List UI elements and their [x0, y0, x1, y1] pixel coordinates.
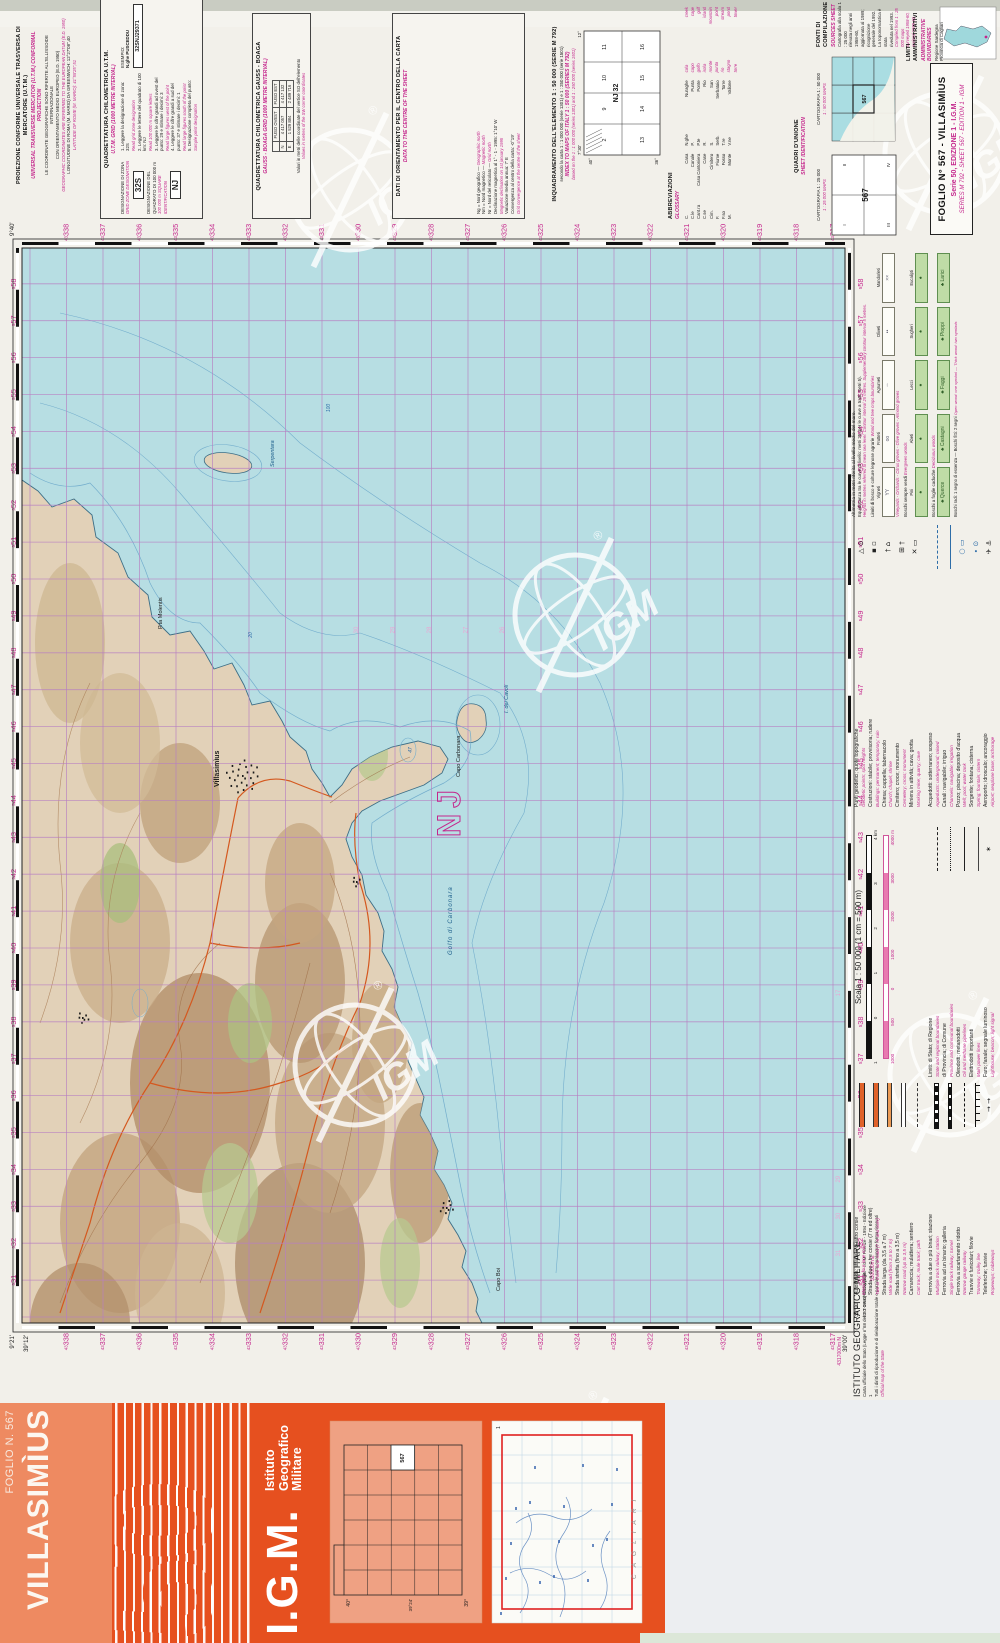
full-northing-label: 4317000m N	[837, 1337, 843, 1366]
legend-row-text: Teleferiche; funivieRopeways; cableways	[984, 1127, 995, 1295]
c50-heading: CARTOGRAFIA 1 : 50 0001 : 50 000 MAPS	[816, 53, 827, 145]
index-cell: 9	[602, 108, 608, 111]
margin-line: rilevata negli anni 1958-60,	[848, 1, 859, 47]
legend-symbol-b1	[937, 827, 938, 871]
grid-coordinate-label: 43338	[62, 224, 71, 241]
zone-value: 32S	[133, 171, 144, 199]
legend-row: Oleodotti; metanodottiOil and methane pi…	[955, 827, 969, 1077]
margin-line: QUADRETTATURA CHILOMETRICA U.T.M.	[104, 4, 111, 214]
scale-tick: 1000	[890, 1054, 895, 1064]
legend-row: Costruzioni: stabile; provvisoria; ruder…	[868, 525, 882, 807]
grid-coordinate-label: 43320	[719, 1333, 728, 1350]
legend-row: Tranvie e funicolari; filovieTramway; tr…	[969, 1083, 983, 1295]
legend-symbol-road-a	[859, 1083, 865, 1127]
legend-label-en: Oil and methane pipelines	[962, 874, 967, 1077]
legend-row-text: Costruzioni: stabile; provvisoria; ruder…	[869, 569, 880, 807]
crop-symbol-box: ◦◦	[882, 360, 895, 410]
legend-row-text: Carrareccia; mulattiera; sentieroCart tr…	[910, 1127, 921, 1295]
scale-tick: 3	[873, 882, 878, 885]
deciduous-symbol-box: ♣ Querce	[937, 467, 950, 517]
scale-m-ticks: 100050001000200030004000 m	[890, 830, 895, 1064]
legend-row-text: Tranvie e funicolari; filovieTramway; tr…	[970, 1127, 981, 1295]
grid-coordinate-label: 43326	[500, 1333, 509, 1350]
legend-row-text: Pozzo; piscina; deposito d'acquaWell; po…	[957, 569, 968, 807]
evergreen-symbol-box: ♠	[915, 253, 928, 303]
legend-symbol-geo: △ ⊙	[856, 525, 866, 569]
vegetation-legend: Altimetria in metri riferita al livello …	[852, 253, 958, 517]
orientation-note-line: Grid convergence at the centre of the sh…	[516, 18, 521, 214]
scale-tick: 4000 m	[890, 830, 895, 845]
legend-group: Ferrovia a due o più binari; stazioneMul…	[928, 1083, 996, 1295]
margin-line: Provincia di Cagliari	[939, 1, 945, 61]
deciduous-symbol-box: ♣ Castagni	[937, 414, 950, 464]
legend-symbol-railn	[964, 1083, 965, 1127]
legend-row: Strada a due o tre corsie (7 m ed oltre)…	[868, 1083, 882, 1295]
legend-label-en: Motorway; four lane road	[861, 1130, 866, 1295]
evergreen-symbol-box: ♠	[915, 307, 928, 357]
utm-step-en: Sample point designation	[193, 73, 198, 151]
legend-row-text: Miniera in attività; cava; grottaWorking…	[910, 569, 921, 807]
gauss-boaga-interior-number: 30	[354, 626, 360, 633]
crops-caption: Limiti di bosco e colture legnose agrari…	[870, 253, 875, 517]
legend-row: Strada larga (da 3,5 a 7 m)Wide road (fr…	[881, 1083, 895, 1295]
margin-line: ADMINISTRATIVE BOUNDARIES	[921, 1, 934, 61]
grid-coordinate-label: 43327	[463, 1333, 472, 1350]
legend-row-text: Acquedotti: sotterraneo; sospesoAqueduct…	[929, 569, 940, 807]
legend-label-en: Church; chapel; shrine	[888, 572, 893, 807]
legend-row: Canali: navigabile; irriguoChannels: nav…	[942, 525, 956, 807]
scale-tick: 500	[890, 1018, 895, 1026]
legend-row-text: Strada a due o tre corsie (7 m ed oltre)…	[869, 1127, 880, 1295]
grid-coordinate-label: 43329	[390, 1333, 399, 1350]
scale-tick: 2	[873, 927, 878, 930]
legend-label-en: Province and communal boundaries	[949, 874, 954, 1077]
sheet-series-en: SERIES M 792 - SHEET 567 - EDITION 1 - I…	[960, 68, 966, 230]
gauss-boaga-interior-number: 28	[427, 626, 433, 633]
gauss-boaga-interior-number: 30	[836, 1212, 842, 1219]
crops-boxes: YYoo◦◦••××	[882, 253, 895, 517]
grid-coordinate-label: 43335	[171, 224, 180, 241]
margin-line: LE COORDINATE GEOGRAFICHE SONO RIFERITE …	[44, 17, 55, 193]
deciduous-symbol-box: ♣ Larici	[937, 253, 950, 303]
grid-coordinate-label: 43323	[609, 224, 618, 241]
abbrev-columns: C.CasaC.leCanaleCant.raCasa CantonieraC.…	[684, 7, 739, 219]
grid-coordinate-label: 43319	[755, 224, 764, 241]
legend-label-en: Working mine; quarry; cave	[916, 572, 921, 807]
legend-symbol-cem: ⊞ †	[897, 525, 907, 569]
gauss-boaga-table: FUSO OVESTFUSO ESTN4 417 0574 417 132E1 …	[272, 80, 294, 153]
margin-line: Compiled from 1 : 25 000 maps	[894, 1, 905, 47]
legend-row: Sorgente; fontana; cisternaSpring; fount…	[969, 525, 983, 807]
index-grid-title: NJ 32	[613, 84, 620, 103]
utm-grid-box: QUADRETTATURA CHILOMETRICA U.T.M.U.T.M. …	[100, 0, 203, 219]
sheet-edition: Serie 50, EDIZIONE 1 - I.G.M.	[951, 68, 958, 230]
margin-line: 1 : 25 000 MAPS	[822, 151, 827, 239]
legend-group: Punti geodetici; quote topograficheGeode…	[854, 525, 922, 807]
scale-bar-km	[866, 835, 872, 1059]
utm-step-it: 3. Leggere le cifre grandi ad ovest del …	[154, 73, 165, 151]
legend-label-en: Channels: navigable; irrigation	[949, 572, 954, 807]
corner-longitude-west: 9°21'	[10, 1335, 16, 1349]
margin-line: aggiornata al 1989; ricognizione	[860, 1, 871, 47]
margin-line: GAUSS - BOAGA GRID (1000 METRE INTERVAL)	[263, 18, 270, 214]
grid-coordinate-label: 43325	[536, 1333, 545, 1350]
grid-coordinate-label: 43325	[536, 224, 545, 241]
legend-row-text: Sorgente; fontana; cisternaSpring; fount…	[970, 569, 981, 807]
legend-label-en: Ropeways; cableways	[990, 1130, 995, 1295]
crops-names: VignetiFruttetiAgrumetiOlivetiMandorleti	[876, 253, 881, 517]
legend-symbol-aqua	[937, 525, 938, 569]
grid-coordinate-label: 43322	[646, 224, 655, 241]
place-label: Capo Boi	[496, 1268, 502, 1291]
index-to-maps-note: INQUADRAMENTO DELL'ELEMENTO 1 : 50 000 (…	[552, 9, 577, 219]
index-cell: 14	[640, 106, 646, 112]
quadrant-label: IV	[886, 162, 891, 167]
legend-symbol-rope: → →	[984, 1083, 994, 1127]
legend-row: Faro; fanale; segnale luminosoLighthouse…	[982, 827, 996, 1077]
scale-tick: 1	[873, 1061, 878, 1064]
grid-coordinate-label: 43326	[500, 224, 509, 241]
legend-symbol-spring: ∙ ⊙	[971, 525, 981, 569]
place-label: Villasimìus	[214, 750, 221, 787]
scale-tick: 0	[890, 988, 895, 991]
evergreen-caption: Boschi sempre verdi Evergreen woods	[903, 253, 908, 517]
evergreen-boxes: ♠♠♠♠♠	[915, 253, 928, 517]
legend-row: Punti geodetici; quote topograficheGeode…	[854, 525, 868, 807]
legend-row-text: Oleodotti; metanodottiOil and methane pi…	[957, 871, 968, 1077]
legend-row: Autostrada; strada a quattro corsieMotor…	[854, 1083, 868, 1295]
abbrev-column: N.gheNuragheP.PuntaP.tePonteR.RioS.SanSe…	[684, 80, 739, 145]
legend-label-en: Two or three lane road (7 m and over)	[875, 1130, 880, 1295]
legend-symbol-rail1	[948, 1083, 952, 1129]
depth-label: 20	[248, 632, 254, 639]
legend-label-en: Aqueducts: underground; raised	[935, 572, 940, 807]
legend-row-text: Canali: navigabile; irriguoChannels: nav…	[943, 569, 954, 807]
glossary-entry: torretower	[733, 7, 739, 72]
abbrev-column: C.CasaC.leCanaleCant.raCasa CantonieraC.…	[684, 154, 739, 219]
margin-line: LATITUDE OF ROME (M. MARIO): 41°55'25",5…	[72, 17, 77, 193]
legend-symbol-road-2	[873, 1083, 879, 1127]
legend-row: Aeroporto; idroscalo; ancoraggioAirport;…	[982, 525, 996, 807]
cover-page-number: 1	[496, 1426, 502, 1429]
legend-row-text: Cimitero; croce; monumentoCemetery; cros…	[896, 569, 907, 807]
orientation-diagram-space	[410, 18, 476, 214]
margin-line: U.T.M. GRID (1000 METRE INTERVAL)	[111, 4, 118, 214]
orientation-data-box: DATI DI ORIENTAMENTO PER IL CENTRO DELLA…	[392, 13, 525, 219]
index-current-sheet: 567	[400, 1453, 406, 1462]
grid-coordinate-label: 43323	[609, 1333, 618, 1350]
deciduous-symbol-box: ♣ Faggi	[937, 360, 950, 410]
scale-tick: 2000	[890, 911, 895, 921]
sheet-identification-heading: QUADRI D'UNIONESHEET IDENTIFICATION	[794, 53, 808, 239]
current-sheet-number: 567	[862, 95, 868, 104]
grid-coordinate-label: 43330	[354, 1333, 363, 1350]
example-point: N.ghe PUSCEDDU	[125, 4, 131, 68]
legend-label-en: Tramway; trolley line	[976, 1130, 981, 1295]
administrative-boundaries-block: LIMITI AMMINISTRATIVIADMINISTRATIVE BOUN…	[906, 1, 945, 61]
grid-coordinate-label: 43331	[317, 1333, 326, 1350]
utm-columns: DESIGNAZIONE DI ZONAGRID ZONE DESIGNATIO…	[120, 4, 199, 214]
scale-tick: 1	[873, 972, 878, 975]
rotated-landscape-sheet: 5315315325325335335345345355355365365375…	[0, 0, 1000, 1643]
deciduous-caption: Boschi a foglie caduche Deciduous woods	[931, 253, 936, 517]
glossary-title: GLOSSARY	[675, 7, 682, 219]
margin-line: ABBREVIAZIONI	[668, 7, 675, 219]
grid-coordinate-label: 43333	[244, 224, 253, 241]
legend-row-text: di Provincia; di ComuneProvince and comm…	[943, 871, 954, 1077]
legend-group: Autostrada; strada a quattro corsieMotor…	[854, 1083, 922, 1295]
place-label: Serpentara	[270, 440, 276, 467]
legend-row-text: Chiesa; cappella; tabernacoloChurch; cha…	[883, 569, 894, 807]
grid-coordinate-label: 43337	[98, 224, 107, 241]
index-corner-label: 40°	[588, 158, 593, 165]
abbreviations-block: ABBREVIAZIONIGLOSSARYC.CasaC.leCanaleCan…	[668, 7, 739, 219]
utm-step-it: 4. Leggere le cifre grandi a sud del pun…	[170, 73, 181, 151]
legend-label-en: Spring; fountain; cistern	[976, 572, 981, 807]
gauss-note-en: Values in metres of the SW corner coordi…	[301, 18, 306, 214]
quadrant-label: II	[842, 164, 847, 167]
legend-row: Ferrovia ad un binario; galleriaSingle t…	[942, 1083, 956, 1295]
legend-row-text: Ferrovia a due o più binari; stazioneMul…	[929, 1129, 940, 1295]
grid-coordinate-label: 43324	[573, 224, 582, 241]
scale-title: Scala 1 : 50 000 (1 cm = 500 m)	[854, 817, 863, 1077]
legend-row-text: Elettrodotti importantiMain power lines	[970, 871, 981, 1077]
scale-bar-block: Scala 1 : 50 000 (1 cm = 500 m) 101234 k…	[854, 817, 895, 1077]
scale-tick: 0	[873, 1017, 878, 1020]
margin-line: INQUADRAMENTO DELL'ELEMENTO 1 : 50 000 (…	[552, 9, 559, 219]
grid-coordinate-label: 43319	[755, 1333, 764, 1350]
abbrev-entry: M.Monte	[727, 154, 733, 219]
gauss-boaga-interior-number: 29	[391, 626, 397, 633]
depth-label: 47	[408, 747, 414, 753]
index-lat-top: 40°	[346, 1599, 352, 1607]
grid-coordinate-label: 43337	[98, 1333, 107, 1350]
legend-symbol-anchor: ✈ ⚓	[984, 525, 994, 569]
legend-symbol-road-w	[887, 1083, 892, 1127]
grid-coordinate-label: 43336	[135, 1333, 144, 1350]
legend-symbol-road-n	[901, 1083, 906, 1127]
grid-coordinate-label: 43334	[208, 224, 217, 241]
legend-row: Teleferiche; funivieRopeways; cableways→…	[982, 1083, 996, 1295]
index-cell: 10	[602, 75, 608, 81]
margin-line: SHEET IDENTIFICATION	[801, 53, 808, 239]
legend-row: Strada stretta (fino a 3,5 m)Narrow road…	[895, 1083, 909, 1295]
grid-coordinate-label: 43332	[281, 1333, 290, 1350]
legend-row-text: Strada stretta (fino a 3,5 m)Narrow road…	[896, 1127, 907, 1295]
corner-latitude-top: 39°12'	[24, 1335, 30, 1352]
evergreen-symbol-box: ♠	[915, 360, 928, 410]
index-cell: 2	[602, 139, 608, 142]
grid-coordinate-label: 43335	[171, 1333, 180, 1350]
margin-line: La toponomastica è stata	[877, 1, 888, 47]
grid-coordinate-label: 43327	[463, 224, 472, 241]
legend-symbol-church: † ⌂	[883, 525, 893, 569]
legend-label-en: Buildings: permanent; temporary; ruin	[875, 572, 880, 807]
grid-coordinate-label: 43328	[427, 224, 436, 241]
legend-row: Cimitero; croce; monumentoCemetery; cros…	[895, 525, 909, 807]
margin-line: FONTI DI COMPILAZIONE	[816, 1, 831, 47]
legend-label-en: Multiple track railway; station	[935, 1132, 940, 1295]
evergreen-symbol-box: ♠	[915, 467, 928, 517]
legend-row: Ferrovia a scartamento ridottoNarrow gau…	[955, 1083, 969, 1295]
legend-symbol-light: ✶	[984, 827, 994, 871]
square-label-it: DESIGNAZIONE DEL QUADRATO DI 100 000 m	[146, 156, 157, 214]
legend-row: Pozzo; piscina; deposito d'acquaWell; po…	[955, 525, 969, 807]
legend-label-en: Lighthouse; beacon; light signal	[990, 874, 995, 1077]
gauss-boaga-interior-number: 27	[464, 626, 470, 633]
margin-line: based on the 1 : 1 000 000 (series 1301)…	[571, 9, 576, 219]
legend-symbol-canal	[950, 525, 951, 569]
legend-row: Elettrodotti importantiMain power lines	[969, 827, 983, 1077]
legend-symbol-rail2	[934, 1083, 939, 1129]
cover-panels-layer: 56740°39°24'39°CAGLIARI1	[0, 1400, 1000, 1643]
deciduous-symbol-box: ♣ Pioppi	[937, 307, 950, 357]
legend-label-en: Cemetery; cross; monument	[902, 572, 907, 807]
grid-coordinate-label: 43321	[682, 224, 691, 241]
altimetry-note-en: Heights in metres referred to mean sea l…	[862, 253, 867, 517]
projection-note: PROIEZIONE CONFORME UNIVERSALE TRASVERSA…	[16, 17, 77, 193]
margin-line: Cartografia alla scala 1 : 25 000	[837, 1, 848, 47]
index-corner-label: 7°30'	[577, 145, 582, 155]
legend-symbol-b2	[950, 827, 951, 871]
legend-symbol-well: ○ ▭	[957, 525, 967, 569]
legend-row-text: Punti geodetici; quote topograficheGeode…	[855, 569, 866, 807]
woods-density-note: Boschi radi: 1 segno di essenza — Boschi…	[953, 253, 958, 517]
legend-row: di Provincia; di ComuneProvince and comm…	[942, 827, 956, 1077]
utm-example-column: ESEMPIO:N.ghe PUSCEDDU32SNJ29371	[120, 4, 199, 68]
grid-coordinate-label: 43336	[135, 224, 144, 241]
place-label: Golfo di Carbonara	[448, 886, 454, 955]
index-cell: 15	[640, 75, 646, 81]
legend-symbol-mine: ✕ ▭	[910, 525, 920, 569]
index-cell: 16	[640, 44, 646, 50]
legend-symbol-tram	[975, 1083, 980, 1127]
evergreen-symbol-box: ♠	[915, 414, 928, 464]
legend-row-text: Strada larga (da 3,5 a 7 m)Wide road (fr…	[883, 1127, 894, 1295]
grid-coordinate-label: 43322	[646, 1333, 655, 1350]
evergreen-names: PiniAbetiLecciSugheriEucalipti	[909, 253, 914, 517]
utm-zone-column: DESIGNAZIONE DI ZONAGRID ZONE DESIGNATIO…	[120, 156, 199, 214]
gauss-boaga-interior-number: 17	[836, 989, 842, 996]
index-lat-bot: 39°	[464, 1599, 470, 1607]
grid-coordinate-label: 43328	[427, 1333, 436, 1350]
abbrev-entry: V.neVallone	[727, 80, 733, 145]
deciduous-boxes: ♣ Querce♣ Castagni♣ Faggi♣ Pioppi♣ Laric…	[937, 253, 950, 517]
legend-row-text: Autostrada; strada a quattro corsieMotor…	[855, 1127, 866, 1295]
scale-tick: 4 km	[873, 830, 878, 840]
place-label: I. dei Cavoli	[504, 684, 510, 713]
utm-square-designation: NJ	[431, 784, 467, 837]
margin-line: 1 : 50 000 MAPS	[822, 53, 827, 145]
grid-coordinate-label: 43334	[208, 1333, 217, 1350]
grid-coordinate-label: 43338	[62, 1333, 71, 1350]
legend-row: Miniera in attività; cava; grottaWorking…	[908, 525, 922, 807]
crops-en: Vineyards - Orchards - Citrus groves - O…	[895, 253, 900, 517]
scale-km-ticks: 101234 km	[873, 830, 878, 1064]
crop-symbol-box: ××	[882, 253, 895, 303]
legend-label-en: Well; pool; water tank	[962, 572, 967, 807]
margin-line: LIMITI AMMINISTRATIVI	[906, 1, 921, 61]
margin-line: QUADRETTATURA CHILOMETRICA GAUSS - BOAGA	[256, 18, 263, 214]
legend-row: Ferrovia a due o più binari; stazioneMul…	[928, 1083, 942, 1295]
utm-step-it: 1. Leggere la designazione di zona: 32S	[120, 73, 131, 151]
gauss-boaga-box: QUADRETTATURA CHILOMETRICA GAUSS - BOAGA…	[252, 13, 311, 219]
legend-label-en: Main power lines	[976, 874, 981, 1077]
example-grid-reference: 32SNJ29371	[133, 4, 143, 68]
margin-line: PROIEZIONE CONFORME UNIVERSALE TRASVERSA…	[16, 17, 31, 193]
scale-bar-metres	[883, 835, 889, 1059]
location-panel-city: CAGLIARI	[631, 1493, 638, 1579]
index-cell: 11	[602, 44, 608, 50]
square-label-en: 100 000 m SQUARE IDENTIFICATION	[157, 156, 168, 214]
corner-longitude-east: 9°40'	[10, 222, 16, 236]
utm-step-it: 2. Leggere le lettere del quadrato di 10…	[137, 73, 148, 151]
grid-coordinate-label: 43318	[792, 1333, 801, 1350]
legend-group: Limiti: di Stato; di RegioneState and re…	[928, 827, 996, 1077]
scale-tick: 3000	[890, 873, 895, 883]
margin-line: UNIVERSAL TRANSVERSE MERCATOR (U.T.M.) C…	[31, 17, 44, 193]
scanned-igm-map-sheet: 5315315325325335335345345355355365365375…	[0, 0, 1000, 1643]
sheet-title-box: FOGLIO N° 567 - VILLASIMÌUS Serie 50, ED…	[930, 63, 973, 235]
crop-symbol-box: ••	[882, 307, 895, 357]
legend-label-en: Wide road (from 3,5 to 7 m)	[888, 1130, 893, 1295]
index-cell: 13	[640, 137, 646, 143]
scale-tick: 1000	[890, 950, 895, 960]
gauss-boaga-interior-number: 26	[500, 626, 506, 633]
sheet-number-title: FOGLIO N° 567 - VILLASIMÌUS	[937, 68, 948, 230]
index-lat-mid: 39°24'	[408, 1599, 413, 1612]
utm-steps-column: 1. Leggere la designazione di zona: 32SR…	[120, 73, 199, 151]
depth-label: 100	[326, 404, 332, 413]
legend-label-en: Cart track; mule track; path	[916, 1130, 921, 1295]
sources-block: FONTI DI COMPILAZIONESOURCES SHEETCartog…	[816, 1, 916, 47]
corner-latitude-bottom: 39°00'	[843, 1335, 849, 1352]
crop-symbol-box: YY	[882, 467, 895, 517]
glossary-column: calacreekcapocapegolfogulfisolaislandmon…	[684, 7, 739, 72]
c25-heading: CARTOGRAFIA 1 : 25 0001 : 25 000 MAPS	[816, 151, 827, 239]
grid-coordinate-label: 43321	[682, 1333, 691, 1350]
index-corner-label: 36°	[654, 158, 659, 165]
legend-row-text: Faro; fanale; segnale luminosoLighthouse…	[984, 871, 995, 1077]
legend-label-en: Airport; seaplane base; anchorage	[990, 572, 995, 807]
legend-row-text: Limiti: di Stato; di RegioneState and re…	[929, 871, 940, 1077]
gauss-boaga-interior-number: 31	[836, 1249, 842, 1256]
legend-group: Acquedotti: sotterraneo; sospesoAqueduct…	[928, 525, 996, 807]
grid-coordinate-label: 43324	[573, 1333, 582, 1350]
gauss-boaga-interior-number: 29	[836, 1175, 842, 1182]
margin-line: DATI DI ORIENTAMENTO PER IL CENTRO DELLA…	[396, 18, 403, 214]
legend-symbol-pipe	[964, 827, 965, 871]
zone-label-en: GRID ZONE DESIGNATION	[125, 156, 130, 214]
legend-label-en: Single track railway; tunnel	[949, 1132, 954, 1295]
legend-row: Acquedotti: sotterraneo; sospesoAqueduct…	[928, 525, 942, 807]
map-graphics-layer: 5315315325325335335345345355355365365375…	[0, 0, 1000, 1643]
legend-symbol-track	[917, 1083, 918, 1127]
legend-symbol-power	[978, 827, 979, 871]
quadrant-label: I	[842, 224, 847, 225]
legend-label-en: Geodetic points; spot heights	[861, 572, 866, 807]
crop-symbol-box: oo	[882, 414, 895, 464]
legend-label-en: State and regional boundaries	[935, 874, 940, 1077]
legend-symbol-build: ▪ ▫	[869, 525, 879, 569]
quadrant-label: III	[886, 223, 891, 227]
grid-coordinate-label: 43317	[828, 1333, 837, 1350]
legend-row-text: Aeroporto; idroscalo; ancoraggioAirport;…	[984, 569, 995, 807]
current-sheet-number: 567	[861, 188, 870, 202]
place-label: Capo Carbonara	[456, 735, 462, 777]
legend-label-en: Narrow road (up to 3,5 m)	[902, 1130, 907, 1295]
index-corner-label: 12°	[577, 31, 582, 38]
